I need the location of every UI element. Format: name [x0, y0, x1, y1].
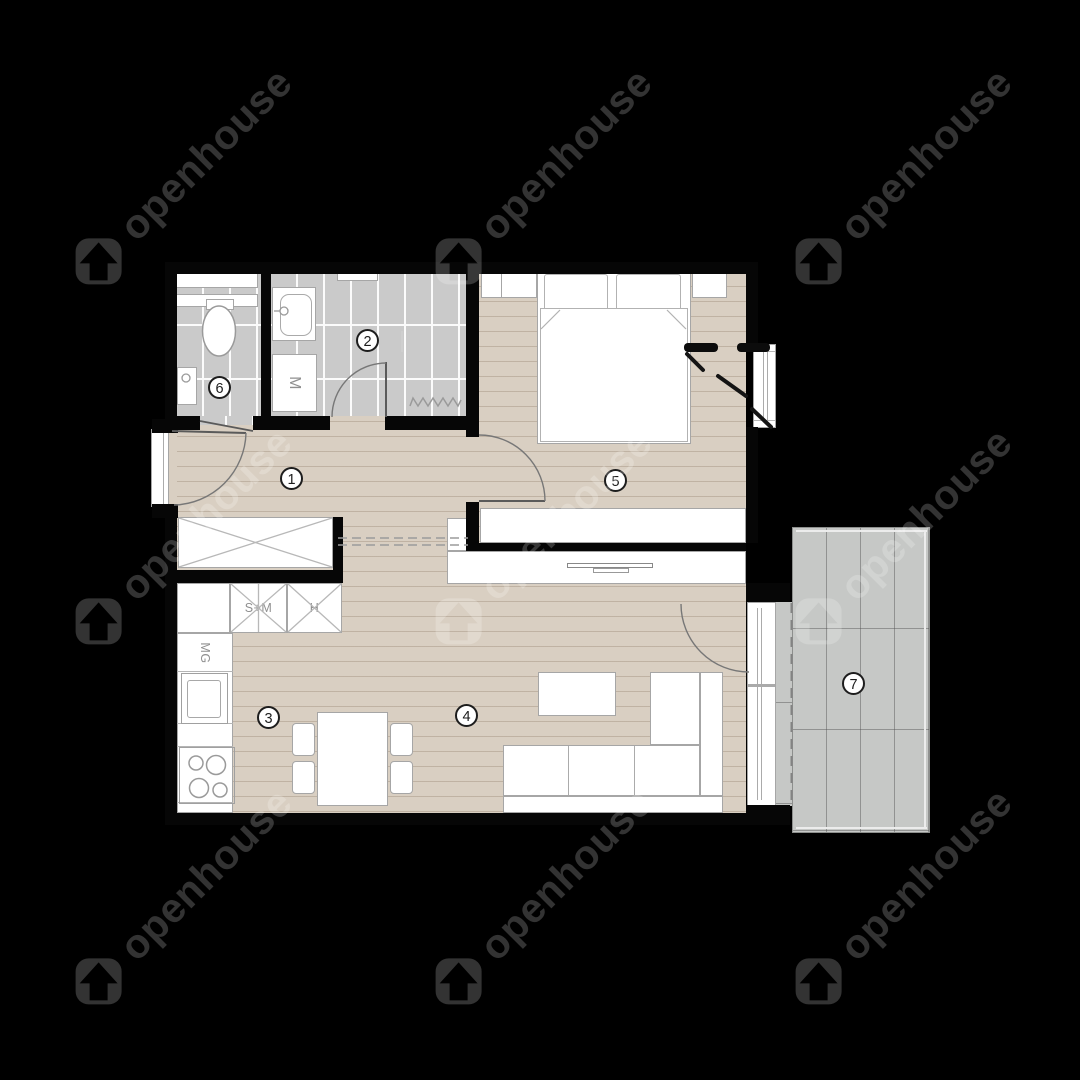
bedroom-door-swing-arc: [479, 435, 545, 501]
room-label-bedroom: 5: [604, 469, 627, 492]
radiator-symbol: [410, 398, 461, 406]
entrance-door-swing-arc: [174, 433, 246, 505]
tap-icon: [280, 307, 288, 315]
room-label-hallway: 1: [280, 467, 303, 490]
room-label-bathroom: 2: [356, 329, 379, 352]
toilet-bowl: [203, 306, 236, 356]
door-swing-tick: [718, 376, 746, 396]
burner: [207, 756, 226, 775]
door-swing-tick: [687, 354, 703, 370]
burner: [213, 783, 227, 797]
room-label-kitchen: 3: [257, 706, 280, 729]
wc-door-leaf: [200, 421, 253, 431]
cabinet-cross-symbols: [179, 518, 341, 632]
room-label-living: 4: [455, 704, 478, 727]
tap-icon: [182, 374, 190, 382]
burner: [190, 779, 209, 798]
room-label-balcony: 7: [842, 672, 865, 695]
blanket-fold: [541, 310, 560, 329]
bathroom-door-swing-arc: [332, 363, 386, 417]
entrance-door-leaf: [172, 431, 246, 433]
floorplan-canvas: M S+M H MG: [0, 0, 1080, 1080]
door-swing-tick: [752, 409, 771, 427]
room-label-wc: 6: [208, 376, 231, 399]
plan-symbols-layer: [0, 0, 1080, 1080]
burner: [189, 756, 203, 770]
balcony-door-swing-arc: [681, 604, 749, 672]
blanket-fold: [667, 310, 686, 329]
